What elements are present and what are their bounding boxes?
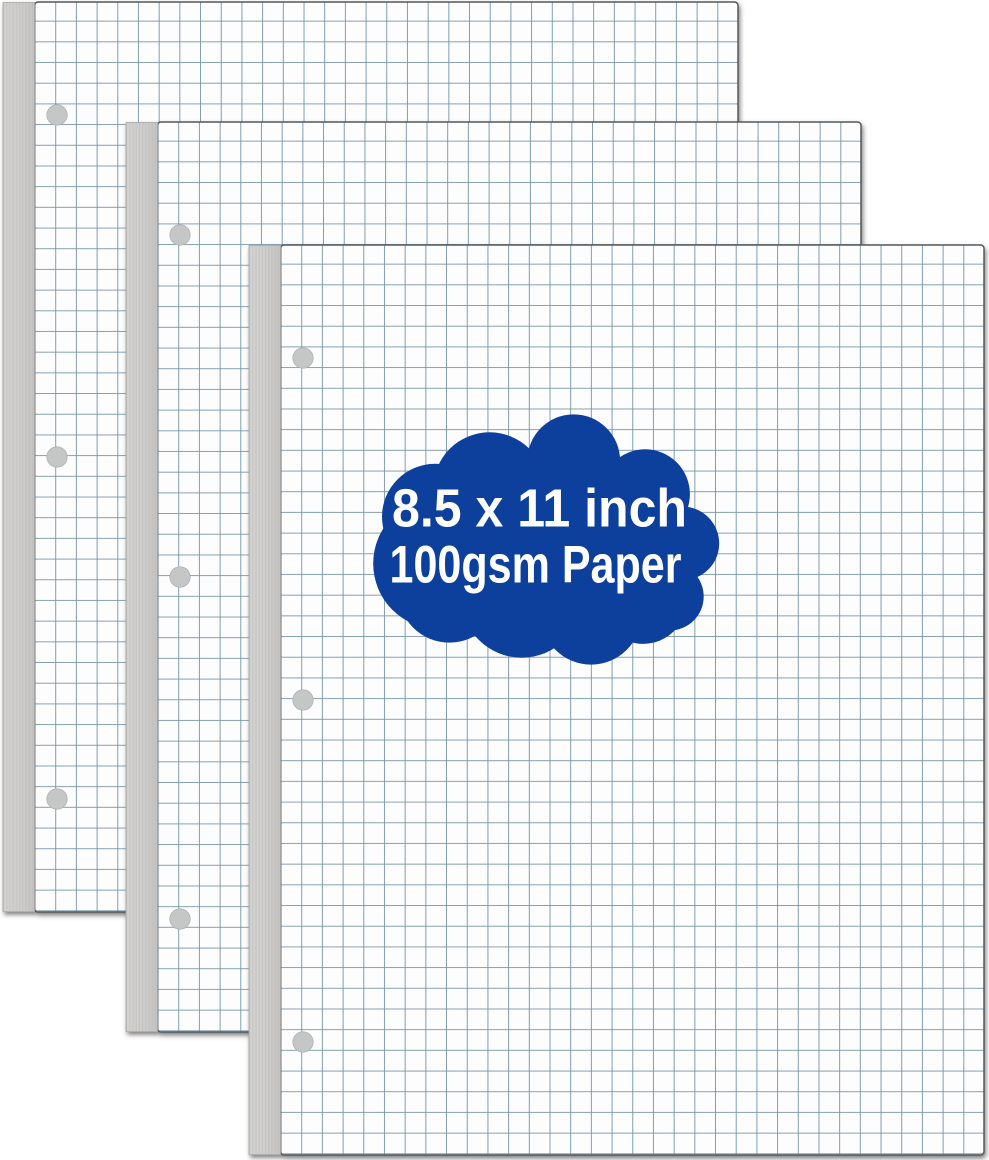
svg-text:8.5 x 11 inch: 8.5 x 11 inch — [392, 479, 687, 539]
svg-text:100gsm Paper: 100gsm Paper — [390, 536, 682, 595]
